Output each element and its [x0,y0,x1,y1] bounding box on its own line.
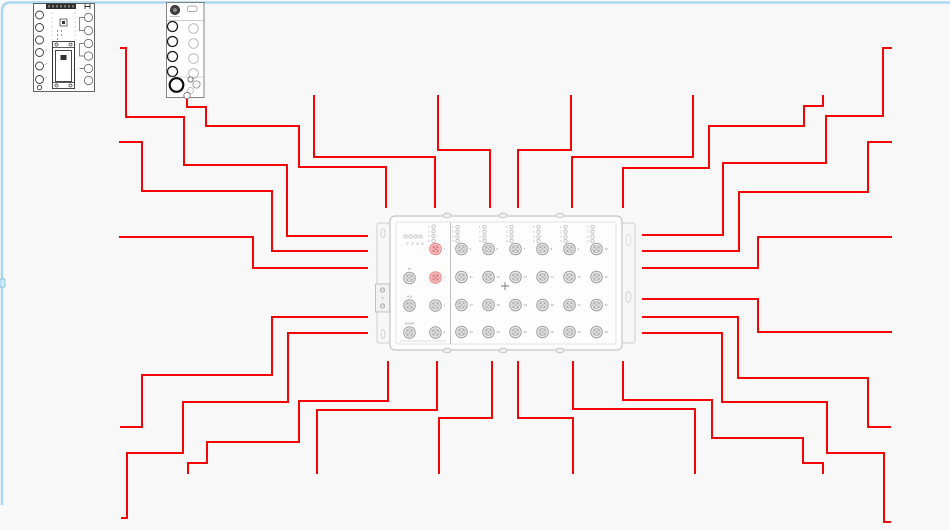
io-right-ports-part [189,54,199,64]
dip-dots-part [57,38,58,39]
port-28-part [598,329,600,331]
port-28-part [598,333,600,335]
port-21-part [567,302,569,304]
port-5-part [461,248,463,250]
port-1-part [433,250,435,252]
port-21[interactable] [564,299,576,311]
port-aux-part [411,303,413,305]
tiny-label: AUX [407,295,413,299]
port-9-part [571,246,573,248]
tiny-label: 10 [605,247,609,251]
io-top-connector-center [173,8,177,12]
controller-right-ports-part [84,13,92,21]
port-18-part [490,306,492,308]
port-8-part [544,250,546,252]
port-19[interactable] [510,299,522,311]
controller-left-ports-part [36,11,44,19]
port-10-part [594,250,596,252]
port-16-part [598,274,600,276]
controller-right-ports-part [84,52,92,60]
cable-wire-L8[interactable] [572,95,693,208]
port-26[interactable] [537,326,549,338]
io-power-connector [170,78,184,92]
screw-icon [69,43,72,46]
port-18-part [486,306,488,308]
cable-wire-R4[interactable] [642,299,892,332]
port-1[interactable] [430,243,442,255]
port-3-part [433,303,435,305]
scene-svg: P1P2BFSF1234TXAUXPOWER123412341234123412… [0,0,950,530]
tiny-label: 12 [497,275,501,279]
port-24-part [486,329,488,331]
tiny-label: 11 [470,275,474,279]
port-22-part [598,302,600,304]
port-12[interactable] [483,271,495,283]
io-left-ports-part [168,22,178,32]
tiny-label: 26 [551,330,555,334]
port-2-part [433,279,435,281]
left-flange [377,223,390,343]
port-17[interactable] [456,299,468,311]
port-3-part [435,305,437,307]
port-tx-part [409,277,411,279]
screw-icon [380,304,384,308]
port-tx-part [411,275,413,277]
port-4-part [433,334,435,336]
led-indicator [404,235,407,238]
port-7-part [515,248,517,250]
port-9-part [567,246,569,248]
port-13-part [517,278,519,280]
port-28-part [594,333,596,335]
controller-left-ports-part [37,85,41,89]
port-14-part [544,278,546,280]
port-9-part [567,250,569,252]
port-20-part [544,302,546,304]
port-2-part [437,275,439,277]
port-7[interactable] [510,243,522,255]
led-indicator [564,235,567,238]
io-right-ports-part [189,39,199,49]
port-21-part [571,302,573,304]
io-left-ports-part [168,67,178,77]
tiny-label: 22 [605,303,609,307]
port-21-part [567,306,569,308]
tiny-label: 14 [551,275,555,279]
port-15-part [571,278,573,280]
port-2-part [433,275,435,277]
led-indicator [537,230,540,233]
cable-wire-L2[interactable] [119,142,368,251]
port-12-part [490,278,492,280]
port-19-part [513,306,515,308]
controller-module[interactable] [34,4,95,92]
port-20-part [544,306,546,308]
port-4-part [433,330,435,332]
diagram-canvas: P1P2BFSF1234TXAUXPOWER123412341234123412… [0,0,950,530]
port-10-part [594,246,596,248]
port-10-part [598,250,600,252]
port-7-part [513,246,515,248]
port-aux[interactable] [404,300,416,312]
cable-wire-R3[interactable] [642,237,892,268]
led-indicator [432,239,435,242]
port-9-part [571,250,573,252]
port-26-part [544,329,546,331]
port-8[interactable] [537,243,549,255]
port-19-part [517,306,519,308]
port-power[interactable] [404,327,416,339]
controller-right-ports-part [84,64,92,72]
port-5[interactable] [456,243,468,255]
port-tx-part [407,275,409,277]
screw-icon [55,43,58,46]
port-2[interactable] [430,272,442,284]
led-indicator [591,225,594,228]
port-13-part [515,276,517,278]
port-18[interactable] [483,299,495,311]
port-1-part [435,248,437,250]
port-23[interactable] [456,326,468,338]
led-indicator [419,235,422,238]
cable-wire-L3[interactable] [119,237,368,268]
led-indicator [537,235,540,238]
port-3-part [437,307,439,309]
port-17-part [463,302,465,304]
port-11-part [463,274,465,276]
port-2-part [437,279,439,281]
tiny-label: 13 [524,275,528,279]
port-15-part [567,274,569,276]
display-square-dot [62,21,65,24]
tiny-label: 24 [497,330,501,334]
port-19-part [513,302,515,304]
led-indicator [510,225,513,228]
port-1-part [437,246,439,248]
tiny-label: 18 [497,303,501,307]
port-1-part [433,246,435,248]
tiny-label: 16 [605,275,609,279]
port-27-part [571,329,573,331]
port-20[interactable] [537,299,549,311]
controller-right-ports-part [84,76,92,84]
port-4-part [435,332,437,334]
screw-icon [69,84,72,87]
controller-left-ports-part [36,36,44,44]
led-indicator [483,239,486,242]
port-23-part [459,333,461,335]
tiny-label: 20 [551,303,555,307]
port-25[interactable] [510,326,522,338]
port-17-part [463,306,465,308]
port-8-part [542,248,544,250]
top-screws-part [499,213,507,218]
port-5-part [463,246,465,248]
port-14-part [540,278,542,280]
port-6[interactable] [483,243,495,255]
io-small-port [193,81,200,88]
port-tx-part [407,279,409,281]
io-small-port [188,77,193,82]
right-flange [622,223,635,343]
port-26-part [540,329,542,331]
port-26-part [542,331,544,333]
screw-icon [380,288,384,292]
cable-wire-B3[interactable] [439,361,492,474]
port-10-part [596,248,598,250]
port-aux-part [407,307,409,309]
io-bottom-port [184,92,190,98]
screw-icon [381,297,383,299]
port-tx-part [411,279,413,281]
io-module[interactable] [167,3,205,99]
tiny-label: TX [408,267,412,271]
cable-wire-L5[interactable] [314,95,435,208]
io-right-ports-part [189,24,199,34]
led-indicator [456,239,459,242]
port-12-part [490,274,492,276]
port-2-part [435,277,437,279]
led-indicator [414,235,417,238]
port-28[interactable] [591,326,603,338]
port-11-part [459,274,461,276]
port-8-part [544,246,546,248]
port-11-part [459,278,461,280]
port-13[interactable] [510,271,522,283]
port-24[interactable] [483,326,495,338]
port-11-part [463,278,465,280]
connector-key [61,55,67,60]
port-aux-part [407,303,409,305]
port-3-part [437,303,439,305]
port-22[interactable] [591,299,603,311]
port-3[interactable] [430,300,442,312]
led-indicator [564,230,567,233]
port-24-part [486,333,488,335]
port-6-part [488,248,490,250]
cable-wire-B2[interactable] [317,361,437,474]
tiny-label: 21 [578,303,582,307]
led-indicator [456,235,459,238]
port-7-part [513,250,515,252]
led-indicator [432,230,435,233]
led-indicator [591,230,594,233]
port-7-part [517,250,519,252]
bottom-screws-part [556,348,564,353]
port-11-part [461,276,463,278]
led-indicator [456,225,459,228]
port-power-part [407,334,409,336]
top-screws-part [556,213,564,218]
port-14[interactable] [537,271,549,283]
port-6-part [490,246,492,248]
dip-dots-part [57,30,58,31]
cable-wire-B4[interactable] [518,361,573,474]
port-12-part [486,274,488,276]
port-9[interactable] [564,243,576,255]
led-indicator [432,234,435,237]
cable-wire-L7[interactable] [518,95,571,208]
led-indicator [483,235,486,238]
led-indicator [591,239,594,242]
led-indicator [564,239,567,242]
port-9-part [569,248,571,250]
port-22-part [596,304,598,306]
dip-dots-part [57,34,58,35]
port-23-part [463,329,465,331]
port-22-part [594,306,596,308]
led-indicator [537,239,540,242]
controller-left-ports-part [36,62,44,70]
port-19-part [515,304,517,306]
distribution-box[interactable]: P1P2BFSF1234TXAUXPOWER123412341234123412… [376,213,636,353]
port-20-part [542,304,544,306]
port-18-part [486,302,488,304]
port-16-part [594,274,596,276]
controller-left-ports-part [36,24,44,32]
top-screws-part [443,213,451,218]
port-15[interactable] [564,271,576,283]
tiny-label: 19 [524,303,528,307]
tiny-label: 15 [578,275,582,279]
controller-left-ports-part [36,49,44,57]
tiny-label: 25 [524,330,528,334]
led-indicator [510,230,513,233]
led-indicator [510,235,513,238]
port-4-part [437,330,439,332]
port-aux-part [411,307,413,309]
port-25-part [513,329,515,331]
port-22-part [594,302,596,304]
port-27-part [571,333,573,335]
port-28-part [596,331,598,333]
port-16[interactable] [591,271,603,283]
screw-icon [55,84,58,87]
dip-dots-part [61,30,62,31]
port-10[interactable] [591,243,603,255]
io-left-ports-part [168,37,178,47]
port-26-part [544,333,546,335]
port-26-part [540,333,542,335]
header-ticks [49,5,73,8]
port-13-part [513,278,515,280]
port-power-part [409,332,411,334]
dip-dots-part [61,34,62,35]
port-23-part [461,331,463,333]
port-20-part [540,306,542,308]
port-power-part [407,330,409,332]
port-24-part [490,333,492,335]
led-indicator [564,225,567,228]
tiny-label: 27 [578,330,582,334]
port-17-part [461,304,463,306]
port-24-part [488,331,490,333]
controller-left-ports-part [36,76,44,84]
port-4-part [437,334,439,336]
led-indicator [537,225,540,228]
port-27-part [567,333,569,335]
cable-wire-R1[interactable] [642,48,892,235]
port-14-part [544,274,546,276]
port-14-part [542,276,544,278]
tiny-label: POWER [405,322,415,326]
controller-right-ports-part [84,26,92,34]
port-13-part [513,274,515,276]
port-power-part [411,334,413,336]
bottom-screws-part [499,348,507,353]
port-17-part [459,302,461,304]
port-23-part [463,333,465,335]
port-16-part [596,276,598,278]
tiny-label: 23 [470,330,474,334]
port-10-part [598,246,600,248]
port-8-part [540,250,542,252]
cable-wire-R6[interactable] [642,333,891,522]
port-15-part [571,274,573,276]
frame-resize-handle[interactable] [0,279,5,287]
port-14-part [540,274,542,276]
port-11[interactable] [456,271,468,283]
led-indicator [483,230,486,233]
led-indicator [591,235,594,238]
led-indicator [456,230,459,233]
port-18-part [488,304,490,306]
led-indicator [432,225,435,228]
port-3-part [433,307,435,309]
port-25-part [513,333,515,335]
cable-wire-L1[interactable] [120,48,368,236]
tiny-label: 17 [470,303,474,307]
port-25-part [517,333,519,335]
port-16-part [598,278,600,280]
port-12-part [486,278,488,280]
controller-right-ports-part [84,39,92,47]
led-indicator [483,225,486,228]
port-28-part [594,329,596,331]
port-13-part [517,274,519,276]
bottom-screws-part [443,348,451,353]
port-24-part [490,329,492,331]
port-15-part [567,278,569,280]
port-20-part [540,302,542,304]
port-22-part [598,306,600,308]
port-25-part [517,329,519,331]
cable-wire-L6[interactable] [438,95,490,208]
port-12-part [488,276,490,278]
tiny-label: 28 [605,330,609,334]
cable-wire-B5[interactable] [573,361,695,474]
port-7-part [517,246,519,248]
port-21-part [571,306,573,308]
io-left-ports-part [168,52,178,62]
port-16-part [594,278,596,280]
port-17-part [459,306,461,308]
led-indicator [510,239,513,242]
port-25-part [515,331,517,333]
port-tx[interactable] [404,272,416,284]
port-8-part [540,246,542,248]
port-27-part [567,329,569,331]
port-4[interactable] [430,327,442,339]
cable-wire-D2[interactable] [121,333,368,518]
port-27[interactable] [564,326,576,338]
port-18-part [490,302,492,304]
port-power-part [411,330,413,332]
port-6-part [486,250,488,252]
port-5-part [459,250,461,252]
port-19-part [517,302,519,304]
port-6-part [486,246,488,248]
